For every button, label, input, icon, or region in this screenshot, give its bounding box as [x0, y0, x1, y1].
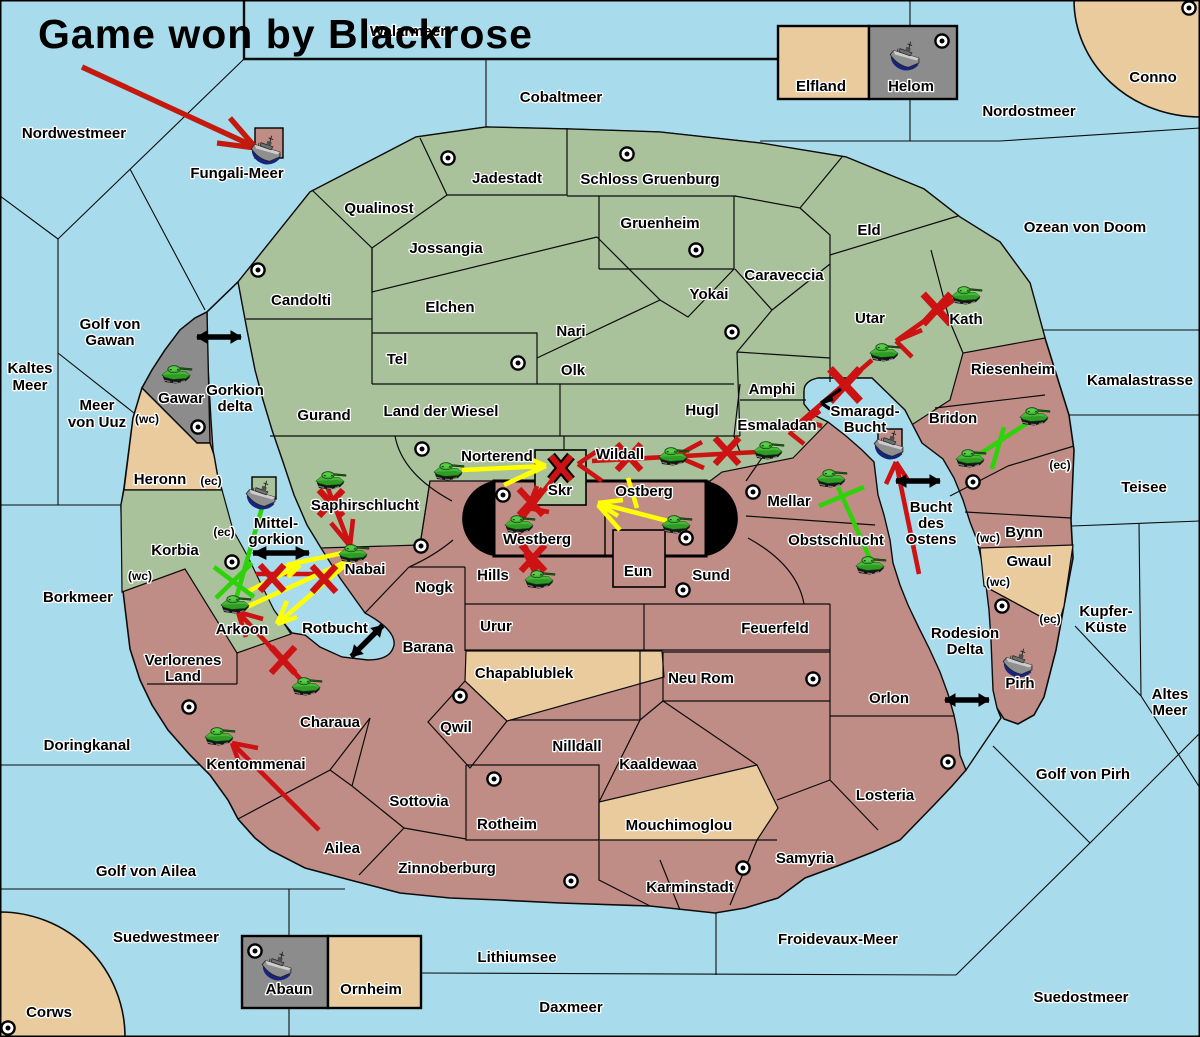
svg-text:Land: Land	[165, 668, 201, 685]
svg-text:Abaun: Abaun	[266, 981, 313, 998]
svg-text:Gruenheim: Gruenheim	[620, 215, 699, 232]
svg-text:Gawar: Gawar	[158, 390, 204, 407]
svg-text:Ailea: Ailea	[324, 840, 361, 857]
svg-text:Schloss Gruenburg: Schloss Gruenburg	[580, 171, 719, 188]
svg-text:Fungali-Meer: Fungali-Meer	[190, 165, 284, 182]
svg-text:Delta: Delta	[947, 641, 984, 658]
svg-text:Yokai: Yokai	[690, 286, 729, 303]
svg-text:Nordostmeer: Nordostmeer	[982, 103, 1076, 120]
svg-text:Wildall: Wildall	[596, 446, 644, 463]
svg-text:Cobaltmeer: Cobaltmeer	[520, 89, 603, 106]
svg-text:Arkoon: Arkoon	[216, 621, 269, 638]
svg-text:delta: delta	[217, 398, 253, 415]
svg-text:Ornheim: Ornheim	[340, 981, 402, 998]
svg-text:Heronn: Heronn	[134, 471, 187, 488]
svg-text:Froidevaux-Meer: Froidevaux-Meer	[778, 931, 898, 948]
svg-text:Neu Rom: Neu Rom	[668, 670, 734, 687]
svg-text:Sottovia: Sottovia	[389, 793, 449, 810]
svg-text:Borkmeer: Borkmeer	[43, 589, 113, 606]
svg-text:Kupfer-: Kupfer-	[1079, 603, 1132, 620]
svg-text:Sund: Sund	[692, 567, 730, 584]
svg-text:Kentommenai: Kentommenai	[206, 756, 305, 773]
svg-text:Golf von Ailea: Golf von Ailea	[96, 863, 197, 880]
svg-text:des: des	[918, 515, 944, 532]
svg-text:Kath: Kath	[949, 311, 982, 328]
svg-text:(ec): (ec)	[213, 525, 234, 539]
svg-text:Urur: Urur	[480, 618, 512, 635]
svg-text:Elfland: Elfland	[796, 78, 846, 95]
svg-text:Olk: Olk	[561, 362, 586, 379]
svg-text:Karminstadt: Karminstadt	[646, 879, 734, 896]
svg-text:Samyria: Samyria	[776, 850, 835, 867]
svg-text:Ozean von Doom: Ozean von Doom	[1024, 219, 1147, 236]
svg-text:Riesenheim: Riesenheim	[971, 361, 1055, 378]
svg-text:Game won by Blackrose: Game won by Blackrose	[38, 11, 533, 57]
svg-text:Jadestadt: Jadestadt	[472, 170, 542, 187]
svg-text:Westberg: Westberg	[503, 531, 571, 548]
svg-text:Nordwestmeer: Nordwestmeer	[22, 125, 126, 142]
svg-text:Jossangia: Jossangia	[409, 240, 483, 257]
svg-text:Bucht: Bucht	[910, 499, 953, 516]
svg-text:Mellar: Mellar	[767, 493, 811, 510]
svg-text:Meer: Meer	[79, 397, 114, 414]
svg-text:Teisee: Teisee	[1121, 479, 1167, 496]
svg-text:Obstschlucht: Obstschlucht	[788, 532, 884, 549]
svg-text:Saphirschlucht: Saphirschlucht	[311, 497, 419, 514]
svg-text:Charaua: Charaua	[300, 714, 361, 731]
svg-text:Norterend: Norterend	[461, 448, 533, 465]
svg-text:Candolti: Candolti	[271, 292, 331, 309]
svg-text:Esmaladan: Esmaladan	[737, 417, 816, 434]
svg-text:(ec): (ec)	[200, 474, 221, 488]
svg-text:(ec): (ec)	[1049, 458, 1070, 472]
svg-text:Elchen: Elchen	[425, 299, 474, 316]
svg-text:Pirh: Pirh	[1005, 675, 1034, 692]
svg-text:Skr: Skr	[548, 482, 572, 499]
svg-text:Meer: Meer	[1152, 702, 1187, 719]
svg-text:Land der Wiesel: Land der Wiesel	[384, 403, 499, 420]
svg-text:Qualinost: Qualinost	[344, 200, 413, 217]
svg-text:(wc): (wc)	[986, 575, 1010, 589]
svg-text:Corws: Corws	[26, 1004, 72, 1021]
svg-text:Gurand: Gurand	[297, 407, 350, 424]
svg-text:Eun: Eun	[624, 563, 652, 580]
svg-text:Qwil: Qwil	[440, 719, 472, 736]
svg-text:Hills: Hills	[477, 567, 509, 584]
svg-text:Meer: Meer	[12, 377, 47, 394]
svg-text:Ostberg: Ostberg	[615, 483, 673, 500]
svg-text:Suedostmeer: Suedostmeer	[1033, 989, 1128, 1006]
svg-text:Orlon: Orlon	[869, 690, 909, 707]
svg-text:(ec): (ec)	[1039, 612, 1060, 626]
svg-text:Suedwestmeer: Suedwestmeer	[113, 929, 219, 946]
svg-text:Barana: Barana	[403, 639, 455, 656]
svg-text:Korbia: Korbia	[151, 542, 199, 559]
svg-text:Caraveccia: Caraveccia	[744, 267, 824, 284]
svg-text:Rotbucht: Rotbucht	[302, 620, 368, 637]
svg-text:Nogk: Nogk	[415, 579, 453, 596]
svg-text:Bridon: Bridon	[929, 410, 977, 427]
svg-text:Doringkanal: Doringkanal	[44, 737, 131, 754]
svg-text:Gawan: Gawan	[85, 332, 134, 349]
svg-text:Chapablublek: Chapablublek	[475, 665, 574, 682]
svg-text:Hugl: Hugl	[685, 402, 718, 419]
svg-text:Tel: Tel	[387, 351, 408, 368]
svg-text:Amphi: Amphi	[749, 381, 796, 398]
svg-text:Gorkion: Gorkion	[206, 382, 264, 399]
svg-text:Smaragd-: Smaragd-	[830, 403, 899, 420]
svg-text:Lithiumsee: Lithiumsee	[477, 949, 556, 966]
svg-text:Daxmeer: Daxmeer	[539, 999, 603, 1016]
svg-text:(wc): (wc)	[976, 531, 1000, 545]
svg-text:Zinnoberburg: Zinnoberburg	[398, 860, 496, 877]
svg-text:Conno: Conno	[1129, 69, 1176, 86]
svg-text:Kamalastrasse: Kamalastrasse	[1087, 372, 1193, 389]
svg-text:Küste: Küste	[1085, 619, 1127, 636]
svg-text:Golf von: Golf von	[80, 316, 141, 333]
svg-text:Nari: Nari	[556, 323, 585, 340]
svg-text:Verlorenes: Verlorenes	[145, 652, 222, 669]
svg-text:Losteria: Losteria	[856, 787, 915, 804]
svg-text:(wc): (wc)	[128, 569, 152, 583]
svg-text:Feuerfeld: Feuerfeld	[741, 620, 809, 637]
svg-text:Nilldall: Nilldall	[552, 738, 601, 755]
svg-text:gorkion: gorkion	[249, 531, 304, 548]
svg-text:Kaltes: Kaltes	[7, 360, 52, 377]
svg-text:Nabai: Nabai	[345, 561, 386, 578]
svg-text:Rotheim: Rotheim	[477, 816, 537, 833]
svg-text:Mittel-: Mittel-	[254, 515, 298, 532]
svg-text:Helom: Helom	[888, 78, 934, 95]
svg-text:Ostens: Ostens	[906, 531, 957, 548]
svg-text:Altes: Altes	[1152, 686, 1189, 703]
svg-text:(wc): (wc)	[135, 412, 159, 426]
svg-text:Bynn: Bynn	[1005, 524, 1043, 541]
svg-text:Gwaul: Gwaul	[1006, 553, 1051, 570]
svg-text:Kaaldewaa: Kaaldewaa	[619, 756, 697, 773]
svg-text:Eld: Eld	[857, 222, 880, 239]
svg-text:Bucht: Bucht	[844, 419, 887, 436]
svg-text:Utar: Utar	[855, 310, 885, 327]
svg-text:Golf von Pirh: Golf von Pirh	[1036, 766, 1130, 783]
svg-text:Mouchimoglou: Mouchimoglou	[626, 817, 733, 834]
svg-text:von Uuz: von Uuz	[68, 414, 126, 431]
svg-text:Rodesion: Rodesion	[931, 625, 999, 642]
